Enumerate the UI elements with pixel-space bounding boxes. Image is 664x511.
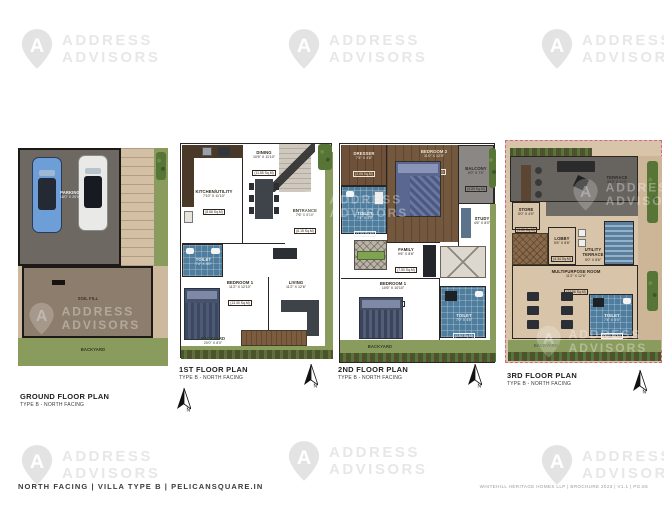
svg-text:A: A <box>297 35 311 57</box>
wc <box>623 298 631 304</box>
watermark-line2: ADVISORS <box>569 342 648 356</box>
staircase <box>512 233 548 265</box>
dining-label: DINING 10'6" X 11'10" (11.55 Sq.M) <box>245 150 283 180</box>
room-dims: 5'0" X 4'0" <box>514 212 538 216</box>
second-floor-plan: DRESSER 7'4" X 4'6" (3.06 Sq.M) TOILET 7… <box>339 143 495 363</box>
chair <box>249 195 254 202</box>
room-dims: 5'0" X 8'6" <box>582 258 604 262</box>
address-advisors-pin-icon: A <box>20 28 54 70</box>
svg-text:A: A <box>550 35 564 57</box>
address-advisors-pin-icon: A <box>28 302 55 336</box>
room-name: BACKYARD <box>356 344 404 349</box>
plan-title: 2ND FLOOR PLAN <box>338 365 408 374</box>
room-area: (6.15 Sq.M) <box>294 228 316 234</box>
watermark-line1: ADDRESS <box>329 444 427 461</box>
lobby-label: LOBBY 5'6" X 8'6" (4.34 Sq.M) <box>550 236 574 266</box>
room-dims: 7'4" X 5'0" <box>187 262 220 266</box>
entry-walkway <box>120 148 154 266</box>
second-floor-title: 2ND FLOOR PLAN TYPE B - NORTH FACING <box>338 365 408 381</box>
north-arrow-first: N <box>304 364 318 393</box>
bed <box>359 297 403 339</box>
watermark-top-right: A ADDRESSADVISORS <box>540 28 664 70</box>
toilet-label: TOILET 7'4" X 5'0" <box>187 257 220 267</box>
address-advisors-pin-icon: A <box>572 178 599 212</box>
watermark-line1: ADDRESS <box>582 32 664 49</box>
plan-subtitle: TYPE B - NORTH FACING <box>179 375 248 381</box>
dryer <box>578 239 586 247</box>
watermark-line2: ADVISORS <box>606 195 664 209</box>
room-dims: 11'0" X 12'0" <box>411 154 457 158</box>
room-dims: 7'4" X 5'0" <box>595 318 629 322</box>
address-advisors-pin-icon: A <box>287 28 321 70</box>
svg-text:A: A <box>297 447 311 469</box>
chair <box>274 183 279 190</box>
room-dims: 9'6" X 8'6" <box>389 252 423 256</box>
kitchen-label: KITCHEN/UTILITY 7'10" X 11'10" (8.66 Sq.… <box>188 189 240 219</box>
room-area: (3.40 Sq.M) <box>354 231 376 237</box>
address-advisors-pin-icon: A <box>20 444 54 486</box>
chair <box>561 292 573 301</box>
parking-label: PARKING 18'0" X 20'0" <box>44 190 96 200</box>
hedge <box>181 350 333 359</box>
staircase-right <box>440 246 486 278</box>
lobby: LOBBY 5'6" X 8'6" (4.34 Sq.M) <box>548 227 576 265</box>
address-advisors-pin-icon: A <box>540 444 574 486</box>
outdoor-sofa <box>557 161 595 172</box>
watermark-text: ADDRESSADVISORS <box>329 444 427 479</box>
svg-text:A: A <box>30 35 44 57</box>
plan-title: 1ST FLOOR PLAN <box>179 365 248 374</box>
right-garden-strip <box>325 152 333 346</box>
watermark-text: ADDRESSADVISORS <box>62 305 141 333</box>
watermark-line2: ADVISORS <box>329 461 427 478</box>
chair <box>561 306 573 315</box>
address-advisors-pin-icon: A <box>287 440 321 482</box>
stair-landing-marker <box>357 251 385 260</box>
plan-title: 3RD FLOOR PLAN <box>507 371 577 380</box>
room-area: (3.06 Sq.M) <box>353 171 375 177</box>
utility-terrace: UTILITY TERRACE 5'0" X 8'6" <box>576 227 604 265</box>
backyard-garden: BACKYARD <box>340 340 496 362</box>
room-area: (4.34 Sq.M) <box>551 256 573 262</box>
first-floor-plan: KITCHEN/UTILITY 7'10" X 11'10" (8.66 Sq.… <box>180 143 332 358</box>
study: STUDY 4'6" X 8'0" <box>458 204 494 246</box>
wc <box>475 291 483 297</box>
address-advisors-pin-icon: A <box>535 325 562 359</box>
watermark-text: ADDRESSADVISORS <box>582 32 664 67</box>
footer-left-text: NORTH FACING | VILLA TYPE B | PELICANSQU… <box>18 482 263 491</box>
room-dims: 7'10" X 11'10" <box>188 194 240 198</box>
wc <box>186 248 194 254</box>
car-windshield <box>85 168 101 174</box>
svg-text:N: N <box>478 384 482 389</box>
room-dims: 11'2" X 12'10" <box>214 285 266 289</box>
room-dims: 18'0" X 20'0" <box>44 195 96 199</box>
watermark-line1: ADDRESS <box>62 448 160 465</box>
pillows <box>398 164 438 173</box>
svg-text:A: A <box>36 308 48 325</box>
room-dims: 7'0" X 4'6" <box>447 318 481 322</box>
wall-stub <box>52 280 65 285</box>
watermark-line2: ADVISORS <box>582 49 664 66</box>
family-label: FAMILY 9'6" X 8'6" (7.50 Sq.M) <box>389 247 423 277</box>
dining-table <box>255 179 273 219</box>
watermark-text: ADDRESSADVISORS <box>606 181 664 209</box>
svg-text:A: A <box>30 451 44 473</box>
svg-text:A: A <box>543 331 555 348</box>
watermark-line2: ADVISORS <box>330 207 409 221</box>
watermark-line2: ADVISORS <box>582 465 664 482</box>
bed <box>184 288 220 340</box>
watermark-line1: ADDRESS <box>62 305 141 319</box>
room-area: (5.85 Sq.M) <box>465 186 487 192</box>
blanket <box>410 176 440 216</box>
room-dims: 11'2" X 12'6" <box>273 285 319 289</box>
backyard-label: BACKYARD <box>63 347 123 352</box>
dining: DINING 10'6" X 11'10" (11.55 Sq.M) <box>243 145 285 244</box>
room-area: (11.55 Sq.M) <box>252 170 275 176</box>
room-area: (13.30 Sq.M) <box>228 300 252 306</box>
backyard-garden: BACKYARD <box>18 338 168 366</box>
dresser: DRESSER 7'4" X 4'6" (3.06 Sq.M) <box>341 145 387 186</box>
room-dims: 9'0" X 7'0" <box>461 171 491 175</box>
address-advisors-pin-icon: A <box>296 190 323 224</box>
counter <box>593 298 604 307</box>
watermark-line2: ADVISORS <box>62 49 160 66</box>
north-arrow-second: N <box>468 364 482 393</box>
tv-unit <box>423 245 436 277</box>
shrub <box>318 144 332 170</box>
pillows <box>187 291 217 299</box>
room-area: (2.93 Sq.M) <box>453 333 475 339</box>
svg-text:N: N <box>187 408 191 413</box>
washbasin <box>211 248 220 254</box>
backyard-label: BACKYARD 20'0" X 8'0" <box>189 336 237 346</box>
pillows <box>362 300 400 308</box>
room-dims: 5'6" X 8'6" <box>550 241 574 245</box>
store: STORE 5'0" X 4'0" (1.86 Sq.M) <box>512 202 540 230</box>
watermark-text: ADDRESSADVISORS <box>569 328 648 356</box>
hedge-top <box>510 148 592 156</box>
svg-text:A: A <box>580 184 592 201</box>
shrub <box>489 148 496 188</box>
room-name: SOIL FILL <box>58 296 118 301</box>
right-garden-strip <box>490 204 496 340</box>
family: FAMILY 9'6" X 8'6" (7.50 Sq.M) <box>387 242 440 278</box>
watermark-top-left: A ADDRESSADVISORS <box>20 28 160 70</box>
bar-stool <box>535 167 542 174</box>
chair <box>274 207 279 214</box>
watermark-bottom-left: A ADDRESSADVISORS <box>20 444 160 486</box>
backyard-garden <box>181 346 333 359</box>
watermark-text: ADDRESSADVISORS <box>62 448 160 483</box>
tv-unit <box>273 248 297 259</box>
watermark-line1: ADDRESS <box>62 32 160 49</box>
washer <box>578 229 586 237</box>
plan-subtitle: TYPE B - NORTH FACING <box>338 375 408 381</box>
bedroom-1: BEDROOM 1 10'6" X 10'10" (10.56 Sq.M) <box>341 278 440 340</box>
watermark-line1: ADDRESS <box>329 32 427 49</box>
watermark-text: ADDRESSADVISORS <box>62 32 160 67</box>
room-dims: 7'4" X 4'6" <box>344 156 384 160</box>
plan-subtitle: TYPE B - NORTH FACING <box>507 381 577 387</box>
north-arrow-ground: N <box>177 388 191 417</box>
svg-text:N: N <box>314 384 318 389</box>
third-floor-title: 3RD FLOOR PLAN TYPE B - NORTH FACING <box>507 371 577 387</box>
watermark-line1: ADDRESS <box>582 448 664 465</box>
stair-to-terrace <box>604 221 634 265</box>
footer-right-text: WHITEHILL HERITAGE HOMES LLP | BROCHURE … <box>480 484 648 489</box>
watermark-text: ADDRESSADVISORS <box>329 32 427 67</box>
room-area: (7.50 Sq.M) <box>395 267 417 273</box>
svg-text:N: N <box>643 390 647 395</box>
bedroom1-label: BEDROOM 1 11'2" X 12'10" (13.30 Sq.M) <box>214 280 266 310</box>
chair <box>249 207 254 214</box>
bar-stool <box>535 179 542 186</box>
first-floor-title: 1ST FLOOR PLAN TYPE B - NORTH FACING <box>179 365 248 381</box>
north-arrow-third: N <box>633 370 647 399</box>
utility-terrace-label: UTILITY TERRACE 5'0" X 8'6" <box>582 247 604 262</box>
room-dims: 11'2" X 12'6" <box>537 274 615 278</box>
watermark-line1: ADDRESS <box>569 328 648 342</box>
room-dims: 10'6" X 11'10" <box>245 155 283 159</box>
plan-subtitle: TYPE B - NORTH FACING <box>20 402 109 408</box>
blanket <box>360 310 402 338</box>
parking-garage: PARKING 18'0" X 20'0" <box>18 148 121 266</box>
svg-text:A: A <box>304 196 316 213</box>
room-area: (8.66 Sq.M) <box>203 209 225 215</box>
soil-fill-label: SOIL FILL <box>58 296 118 301</box>
watermark-overlay-middle: A ADDRESSADVISORS <box>296 190 408 224</box>
car-windshield <box>39 170 55 176</box>
toilet-lower: TOILET 7'0" X 4'6" (2.93 Sq.M) <box>440 286 486 338</box>
staircase-left <box>354 240 387 270</box>
watermark-line1: ADDRESS <box>330 193 409 207</box>
toilet-lower-label: TOILET 7'0" X 4'6" (2.93 Sq.M) <box>447 313 481 343</box>
shrub <box>647 271 658 311</box>
wood-deck <box>241 330 307 346</box>
watermark-text: ADDRESSADVISORS <box>582 448 664 483</box>
counter <box>445 291 457 301</box>
sofa-corner <box>307 300 319 336</box>
watermark-line1: ADDRESS <box>606 181 664 195</box>
ground-floor-title: GROUND FLOOR PLAN TYPE B - NORTH FACING <box>20 392 109 408</box>
watermark-overlay-third-bottom: A ADDRESSADVISORS <box>535 325 647 359</box>
room-dims: 10'6" X 10'10" <box>369 286 417 290</box>
blanket <box>185 303 219 339</box>
watermark-line2: ADVISORS <box>62 319 141 333</box>
toilet: TOILET 7'4" X 5'0" <box>182 244 223 277</box>
dresser-label: DRESSER 7'4" X 4'6" (3.06 Sq.M) <box>344 151 384 181</box>
watermark-line2: ADVISORS <box>329 49 427 66</box>
watermark-bottom-center: A ADDRESSADVISORS <box>287 440 427 482</box>
room-name2: TERRACE <box>582 252 604 257</box>
kitchen-utility: KITCHEN/UTILITY 7'10" X 11'10" (8.66 Sq.… <box>182 145 243 244</box>
bar-stool <box>535 191 542 198</box>
svg-text:A: A <box>550 451 564 473</box>
watermark-text: ADDRESSADVISORS <box>330 193 409 221</box>
address-advisors-pin-icon: A <box>540 28 574 70</box>
watermark-overlay-ground: A ADDRESSADVISORS <box>28 302 140 336</box>
hedge <box>340 353 496 362</box>
sink <box>218 147 230 156</box>
chair <box>527 306 539 315</box>
balcony-label: BALCONY 9'0" X 7'0" (5.85 Sq.M) <box>461 166 491 196</box>
bar-counter <box>521 165 531 201</box>
watermark-overlay-third-top: A ADDRESSADVISORS <box>572 178 664 212</box>
watermark-top-center: A ADDRESSADVISORS <box>287 28 427 70</box>
chair <box>527 292 539 301</box>
chair <box>249 183 254 190</box>
watermark-line2: ADVISORS <box>62 465 160 482</box>
brochure-page: A ADDRESSADVISORS A ADDRESSADVISORS A AD… <box>0 0 664 511</box>
stove <box>202 147 212 156</box>
shrub <box>156 152 166 180</box>
plan-title: GROUND FLOOR PLAN <box>20 392 109 401</box>
chair <box>274 195 279 202</box>
room-name: BACKYARD <box>63 347 123 352</box>
backyard-label: BACKYARD <box>356 344 404 349</box>
watermark-bottom-right: A ADDRESSADVISORS <box>540 444 664 486</box>
